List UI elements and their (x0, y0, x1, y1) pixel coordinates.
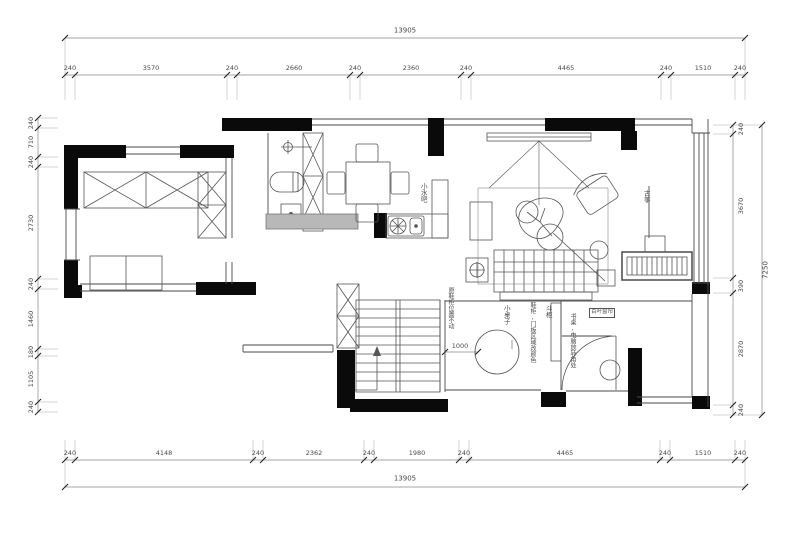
annotation-cabinet_note: 鞋柜,门板区域改颜色 (529, 302, 535, 363)
dim-label: 13905 (394, 28, 416, 35)
dim-label: 390 (738, 280, 745, 292)
dim-label: 3570 (143, 65, 160, 72)
bench-sofa (90, 256, 162, 290)
dim-label: 710 (28, 136, 35, 148)
dim-label: 2660 (286, 65, 303, 72)
speaker-table (466, 258, 488, 282)
annotation-water_bar: 小水吧 (420, 183, 427, 203)
dim-label: 240 (458, 450, 470, 457)
dim-label: 240 (64, 450, 76, 457)
dim-label: 240 (28, 278, 35, 290)
dim-label: 2730 (28, 215, 35, 232)
dim-label: 4465 (557, 450, 574, 457)
floor-plan-canvas: 1390513905725010002403570240266024023602… (0, 0, 800, 535)
dim-label: 180 (28, 346, 35, 358)
dim-label: 7250 (763, 261, 770, 279)
wardrobe (84, 172, 226, 238)
dim-label: 13905 (394, 476, 416, 483)
dim-label: 2362 (306, 450, 323, 457)
dim-label: 1000 (452, 343, 469, 350)
dim-label: 240 (363, 450, 375, 457)
guzheng-instrument (622, 236, 692, 280)
dim-label: 240 (738, 123, 745, 135)
dim-label: 4148 (156, 450, 173, 457)
water-bar-counter (432, 180, 448, 238)
dim-label: 240 (349, 65, 361, 72)
rug (478, 188, 608, 284)
dim-label: 1460 (28, 311, 35, 328)
dim-label: 240 (28, 401, 35, 413)
annotation-stairs_note: 原鞋柜位置不动 (447, 287, 453, 329)
tv-cabinet (470, 202, 492, 240)
annotation-small_table: 小桌子 (503, 305, 510, 325)
armchair (570, 167, 622, 216)
furniture (84, 133, 692, 390)
annotation-blinds: 百叶窗帘 (589, 308, 615, 318)
dim-label: 2360 (403, 65, 420, 72)
dim-label: 240 (64, 65, 76, 72)
dim-label: 240 (226, 65, 238, 72)
dim-label: 240 (734, 450, 746, 457)
dim-label: 1510 (695, 450, 712, 457)
dim-label: 3670 (738, 198, 745, 215)
dim-label: 1510 (695, 65, 712, 72)
dim-label: 1105 (28, 371, 35, 388)
sink-counter (386, 214, 448, 238)
projector-screen (487, 133, 591, 205)
dimension-lines (38, 38, 762, 487)
dim-label: 240 (659, 450, 671, 457)
dim-label: 240 (734, 65, 746, 72)
annotation-guzheng: 古筝 (643, 190, 650, 203)
dim-label: 240 (28, 117, 35, 129)
counter-ledge (266, 214, 358, 229)
sofa (494, 250, 598, 300)
dim-label: 240 (738, 404, 745, 416)
dimension-extension-lines (38, 38, 762, 487)
dimension-ticks (35, 35, 765, 490)
stool (600, 360, 620, 380)
annotation-chest: 斗柜 (545, 305, 552, 318)
dim-label: 4465 (558, 65, 575, 72)
small-round-table (475, 330, 519, 374)
dim-label: 240 (28, 156, 35, 168)
dim-label: 240 (460, 65, 472, 72)
dim-label: 240 (660, 65, 672, 72)
dining-table (327, 144, 409, 222)
floor-plan-drawing (0, 0, 800, 535)
dim-label: 1980 (409, 450, 426, 457)
dim-label: 240 (252, 450, 264, 457)
dim-label: 2870 (738, 341, 745, 358)
water-heater (270, 172, 304, 192)
annotation-desk_note: 书桌,电脑放转角处 (569, 313, 575, 368)
